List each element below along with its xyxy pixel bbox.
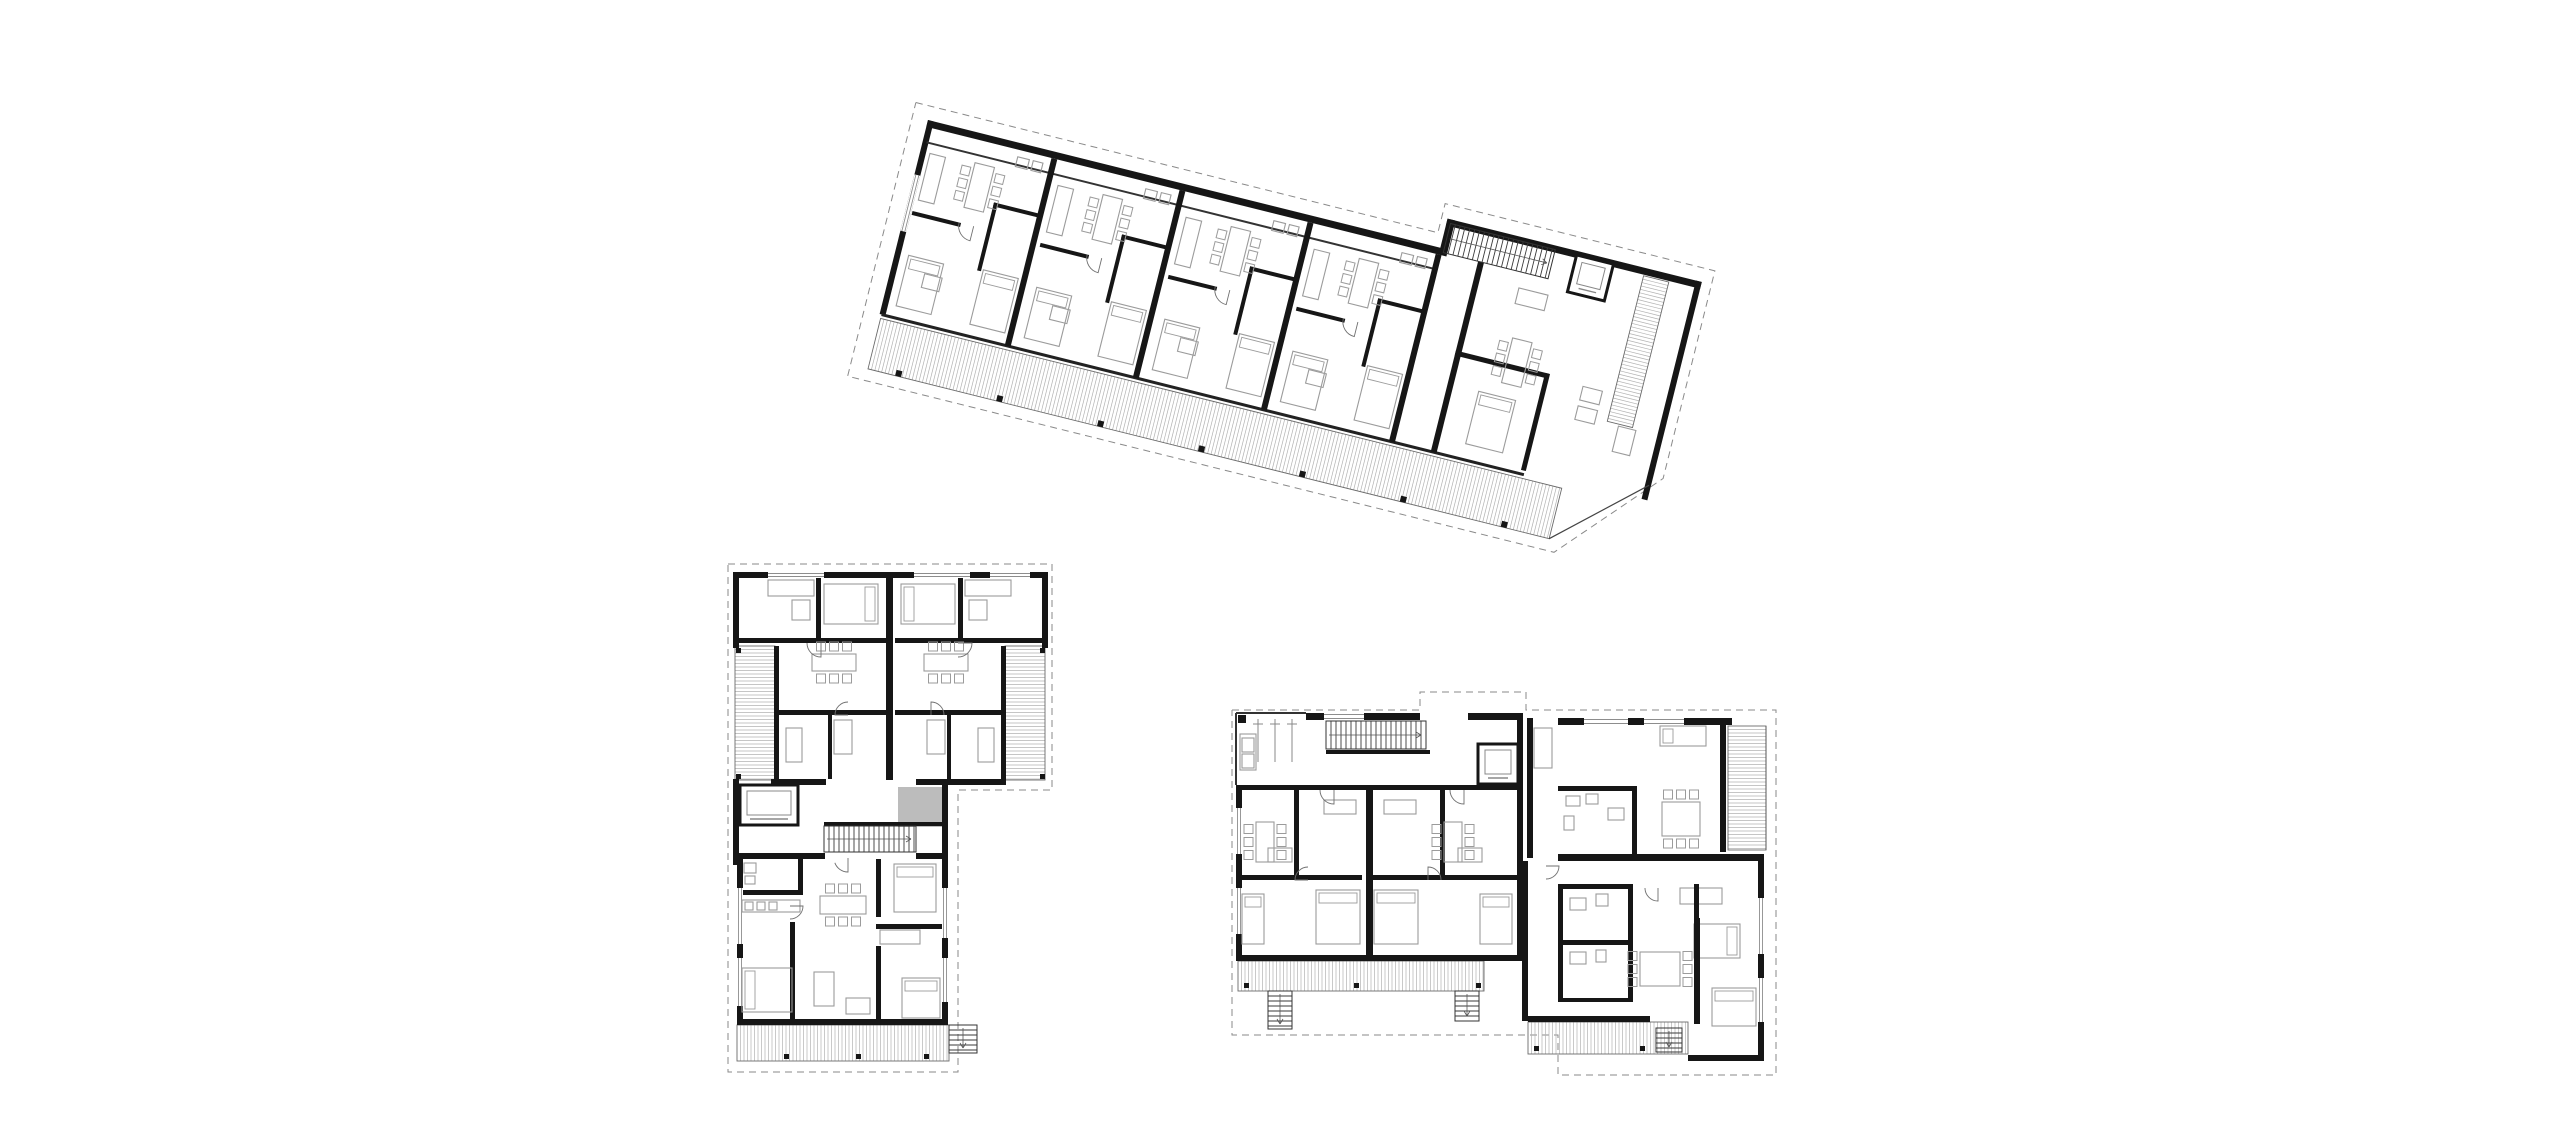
right-ground-floor-plan (1232, 692, 1776, 1075)
floor-plans-drawing (0, 0, 2567, 1142)
left-ground-floor-plan (728, 564, 1052, 1072)
upper-floor-plan (848, 73, 1715, 573)
floor-plan-sheet (0, 0, 2567, 1142)
